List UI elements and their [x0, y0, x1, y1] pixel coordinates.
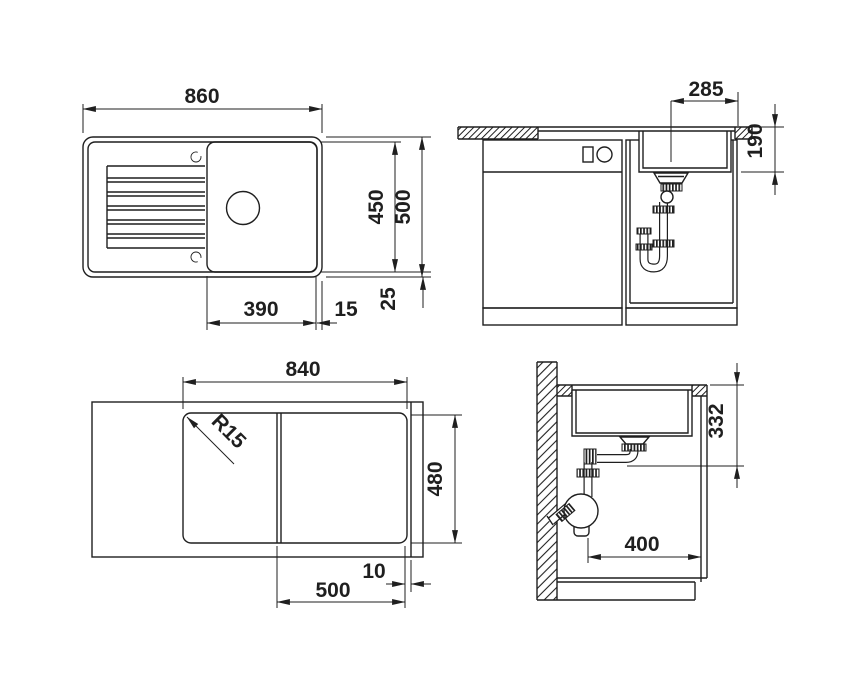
drain-flange	[654, 173, 688, 183]
counter-hatch-back	[557, 385, 572, 396]
dim-label-860: 860	[184, 85, 219, 108]
dim-label-500-width: 500	[315, 579, 350, 602]
left-plinth	[483, 308, 622, 325]
wall-hatch	[537, 362, 557, 600]
drain-nut	[661, 184, 682, 191]
sink-technical-drawing-page: 860 450 500 25 390 15	[0, 0, 852, 674]
dim-label-500-depth: 500	[392, 189, 415, 224]
drain-flange-side	[620, 437, 649, 444]
view-side-section: 332 400	[537, 362, 744, 600]
dim-label-390: 390	[243, 298, 278, 321]
dim-label-10: 10	[362, 560, 385, 583]
dim-label-450: 450	[365, 189, 388, 224]
view-front-section: 285 190	[458, 78, 784, 325]
view-top-plan: 860 450 500 25 390 15	[83, 85, 431, 330]
dim-label-332: 332	[705, 403, 728, 438]
worktop-outline	[92, 402, 423, 557]
drain-nut-side	[622, 444, 646, 451]
dim-label-480: 480	[424, 461, 447, 496]
left-cabinet	[483, 140, 622, 308]
counter-hatch-front	[692, 385, 707, 396]
trap-elbow	[661, 191, 673, 203]
drain-trap-side	[547, 437, 649, 536]
countertop-hatch-left	[458, 127, 538, 139]
dim-label-15: 15	[334, 298, 358, 321]
dim-label-285: 285	[688, 78, 723, 101]
bowl-section-outer	[639, 131, 731, 172]
dim-label-400: 400	[624, 533, 659, 556]
dim-label-25: 25	[377, 287, 400, 311]
dim-label-190: 190	[744, 123, 767, 158]
view-bottom-plan: 840 R15 480 500 10	[92, 358, 462, 608]
sink-outer-edge	[83, 137, 322, 277]
bowl-side-outer	[572, 390, 692, 436]
technical-drawing-canvas: 860 450 500 25 390 15	[0, 0, 852, 674]
right-plinth	[626, 308, 737, 325]
dim-label-840: 840	[285, 358, 320, 381]
